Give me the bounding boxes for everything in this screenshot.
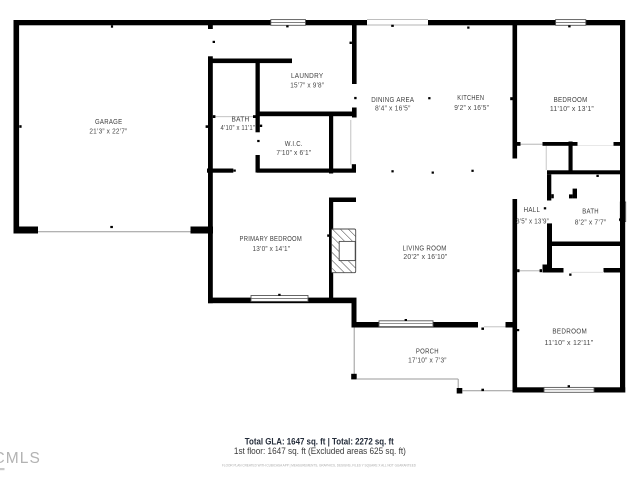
svg-text:20’2” x 16’10”: 20’2” x 16’10” (403, 254, 447, 261)
svg-text:KITCHEN: KITCHEN (457, 93, 484, 102)
svg-text:8’4” x 16’5”: 8’4” x 16’5” (375, 106, 411, 113)
svg-text:LIVING ROOM: LIVING ROOM (403, 244, 447, 253)
svg-text:7’10” x 6’1”: 7’10” x 6’1” (276, 150, 311, 157)
svg-text:PORCH: PORCH (416, 346, 439, 355)
svg-text:BEDROOM: BEDROOM (552, 327, 587, 336)
svg-text:17’10” x 7’3”: 17’10” x 7’3” (408, 358, 447, 365)
svg-text:11’10” x 13’1”: 11’10” x 13’1” (550, 106, 594, 113)
svg-text:21’3” x 22’7”: 21’3” x 22’7” (89, 129, 127, 136)
svg-text:CMLS: CMLS (0, 450, 41, 467)
svg-text:13’0” x 14’1”: 13’0” x 14’1” (253, 246, 291, 253)
svg-text:4’10” x 11’1”: 4’10” x 11’1” (221, 125, 256, 132)
svg-text:1st floor: 1647 sq. ft (Exclud: 1st floor: 1647 sq. ft (Excluded areas 6… (234, 446, 406, 456)
svg-text:3’5” x 13’9”: 3’5” x 13’9” (516, 218, 549, 225)
svg-text:GARAGE: GARAGE (95, 117, 123, 126)
svg-text:11’10” x 12’11”: 11’10” x 12’11” (545, 340, 594, 347)
svg-text:DINING AREA: DINING AREA (371, 95, 414, 104)
svg-text:FLOOR PLAN CREATED WITH CUBICA: FLOOR PLAN CREATED WITH CUBICASA APP | M… (222, 464, 416, 468)
svg-text:LAUNDRY: LAUNDRY (291, 71, 324, 80)
svg-text:HALL: HALL (524, 205, 541, 214)
svg-text:W.I.C.: W.I.C. (285, 139, 303, 148)
svg-text:BATH: BATH (232, 115, 250, 124)
svg-text:BATH: BATH (582, 207, 599, 216)
svg-text:PRIMARY BEDROOM: PRIMARY BEDROOM (240, 234, 303, 243)
svg-text:15’7” x 9’8”: 15’7” x 9’8” (290, 83, 324, 90)
svg-text:Total GLA: 1647 sq. ft | Tot: Total GLA: 1647 sq. ft | Total: 2272 sq.… (245, 436, 394, 446)
svg-text:8’2” x 7’7”: 8’2” x 7’7” (575, 220, 607, 227)
svg-text:BEDROOM: BEDROOM (554, 95, 588, 104)
svg-text:9’2” x 16’5”: 9’2” x 16’5” (454, 105, 489, 112)
